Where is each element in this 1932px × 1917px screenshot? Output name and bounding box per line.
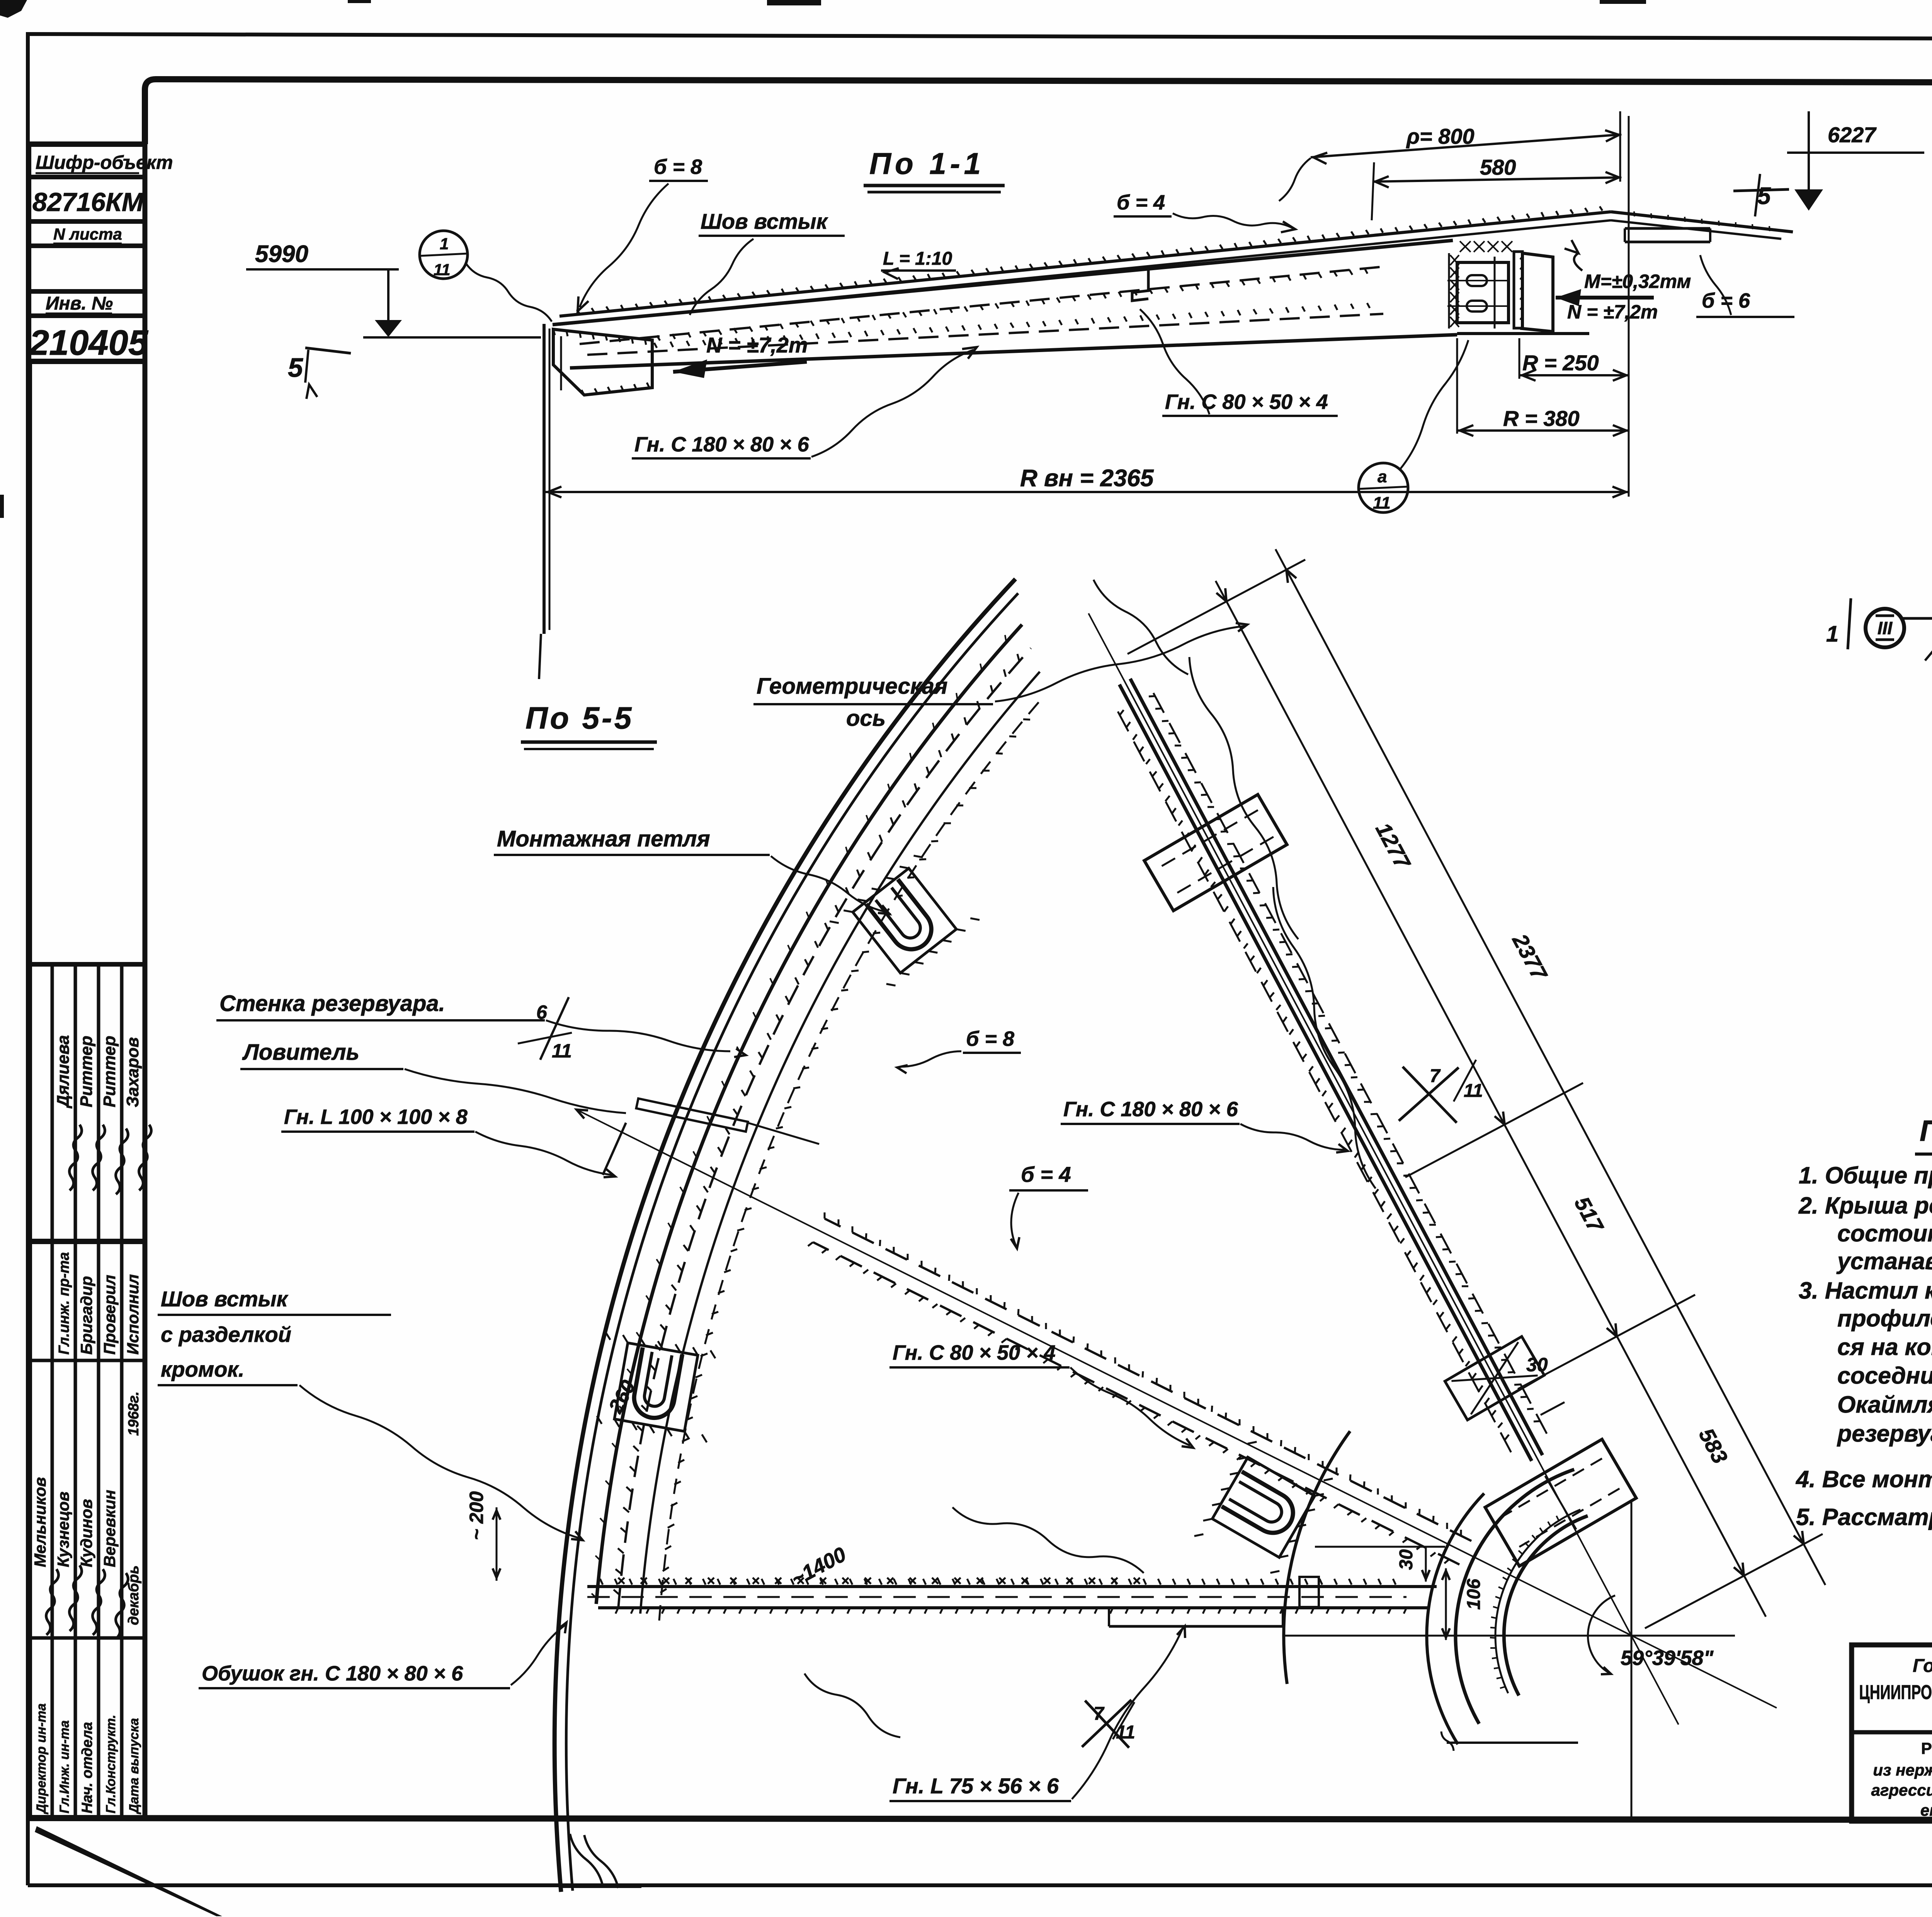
svg-text:Гн. L 75 × 56 × 6: Гн. L 75 × 56 × 6 — [893, 1774, 1059, 1798]
svg-text:1: 1 — [1826, 621, 1838, 647]
svg-text:Шов встык: Шов встык — [701, 209, 828, 233]
svg-text:емкостью 100м³: емкостью 100м³ — [1920, 1801, 1932, 1819]
svg-text:30: 30 — [1526, 1354, 1548, 1376]
svg-text:Гн. С 80 × 50 × 4: Гн. С 80 × 50 × 4 — [1165, 390, 1328, 414]
svg-text:6227: 6227 — [1828, 123, 1877, 147]
svg-text:5990: 5990 — [255, 241, 308, 267]
svg-text:Инв. №: Инв. № — [46, 293, 113, 314]
svg-text:30: 30 — [1396, 1549, 1417, 1570]
svg-text:Дата выпуска: Дата выпуска — [127, 1718, 141, 1815]
svg-text:Гн. L 100 × 100 × 8: Гн. L 100 × 100 × 8 — [284, 1105, 468, 1129]
svg-text:а: а — [1378, 467, 1387, 486]
svg-text:7: 7 — [1094, 1704, 1105, 1724]
svg-text:7: 7 — [1430, 1066, 1441, 1086]
svg-text:М=±0,32тм: М=±0,32тм — [1584, 271, 1691, 292]
svg-text:Директор ин-та: Директор ин-та — [34, 1703, 49, 1815]
svg-text:Проверил: Проверил — [100, 1275, 119, 1355]
svg-text:210405: 210405 — [29, 323, 149, 363]
svg-text:Гн. С 180 × 80 × 6: Гн. С 180 × 80 × 6 — [1063, 1098, 1238, 1121]
svg-text:Окаймляющий щиты гнутый уго: Окаймляющий щиты гнутый уголок приварива… — [1837, 1391, 1932, 1418]
svg-text:11: 11 — [1116, 1722, 1135, 1743]
svg-text:N = ±7,2т: N = ±7,2т — [1567, 301, 1658, 323]
svg-text:82716КМ: 82716КМ — [32, 187, 144, 217]
svg-text:Мельников: Мельников — [31, 1477, 49, 1567]
svg-text:ЦНИИПРОЕКТСТАЛЬКОНСТРУКЦИЯ: ЦНИИПРОЕКТСТАЛЬКОНСТРУКЦИЯ — [1859, 1681, 1932, 1704]
svg-text:Риттер: Риттер — [77, 1036, 96, 1107]
svg-text:По 5-5: По 5-5 — [526, 701, 634, 735]
svg-text:Гн. С 180 × 80 × 6: Гн. С 180 × 80 × 6 — [634, 433, 810, 456]
svg-text:Геометрическая: Геометрическая — [757, 674, 947, 699]
svg-text:ся на конус и на монтаже свар: ся на конус и на монтаже свариваются вст… — [1837, 1334, 1932, 1360]
svg-text:Нач. отдела: Нач. отдела — [79, 1722, 95, 1813]
svg-text:ось: ось — [846, 706, 886, 731]
svg-text:6: 6 — [536, 1001, 548, 1023]
svg-text:устанавливается целиком.: устанавливается целиком. — [1836, 1248, 1932, 1274]
svg-text:По 1-1: По 1-1 — [869, 146, 985, 180]
svg-text:Исполнил: Исполнил — [124, 1274, 142, 1355]
svg-text:соседних щитов.: соседних щитов. — [1837, 1362, 1932, 1389]
svg-text:4. Все монтажные болты М 12.: 4. Все монтажные болты М 12. — [1795, 1466, 1932, 1492]
svg-text:Веревкин: Веревкин — [100, 1490, 119, 1567]
svg-text:106: 106 — [1464, 1579, 1484, 1610]
svg-text:3. Настил крыши б = 4мм прив: 3. Настил крыши б = 4мм приваривается к … — [1799, 1277, 1932, 1304]
svg-text:N = ±7,2т: N = ±7,2т — [706, 333, 808, 357]
svg-text:агрессивных химпродуктов: агрессивных химпродуктов — [1871, 1781, 1932, 1799]
svg-text:Захаров: Захаров — [123, 1037, 142, 1107]
svg-text:11: 11 — [1464, 1081, 1483, 1101]
svg-text:580: 580 — [1480, 155, 1516, 179]
svg-text:б = 8: б = 8 — [966, 1027, 1014, 1050]
svg-text:5. Рассматривать совместно с: 5. Рассматривать совместно с листами 6,1… — [1796, 1504, 1932, 1530]
svg-text:Р Е З Е Р В У А Р: Р Е З Е Р В У А Р — [1921, 1739, 1932, 1757]
svg-text:Ловитель: Ловитель — [242, 1040, 359, 1065]
svg-text:5: 5 — [288, 352, 303, 383]
svg-text:R = 380: R = 380 — [1503, 406, 1580, 431]
svg-text:профилей сплошными швами h: профилей сплошными швами h = 4мм. Окрайк… — [1837, 1305, 1932, 1331]
svg-text:1968г.: 1968г. — [126, 1391, 142, 1436]
svg-text:11: 11 — [1373, 494, 1391, 512]
svg-text:Риттер: Риттер — [100, 1036, 119, 1107]
svg-text:1: 1 — [440, 235, 449, 253]
svg-text:R вн = 2365: R вн = 2365 — [1020, 465, 1154, 492]
svg-text:Обушок гн. С 180 × 80 × 6: Обушок гн. С 180 × 80 × 6 — [202, 1662, 463, 1685]
svg-text:Шифр-объект: Шифр-объект — [36, 152, 173, 173]
svg-text:Госстрой СССР: Госстрой СССР — [1913, 1656, 1932, 1676]
svg-text:Бригадир: Бригадир — [77, 1276, 95, 1355]
svg-text:59°39'58": 59°39'58" — [1621, 1646, 1714, 1670]
svg-text:резервуара сплошными швами: резервуара сплошными швами h = 4 мм. — [1837, 1420, 1932, 1447]
svg-text:Примечания:: Примечания: — [1920, 1115, 1932, 1147]
svg-text:б = 4: б = 4 — [1021, 1162, 1071, 1187]
svg-text:кромок.: кромок. — [161, 1357, 244, 1381]
svg-text:11: 11 — [434, 260, 451, 279]
svg-text:L = 1:10: L = 1:10 — [883, 249, 952, 269]
svg-text:III: III — [1878, 618, 1893, 638]
svg-text:Гл.инж. пр-та: Гл.инж. пр-та — [56, 1252, 72, 1355]
svg-text:с разделкой: с разделкой — [161, 1322, 291, 1347]
svg-text:ρ= 800: ρ= 800 — [1406, 124, 1475, 148]
svg-text:из нержавеющей стали для: из нержавеющей стали для — [1873, 1761, 1932, 1779]
svg-text:б = 4: б = 4 — [1117, 191, 1165, 214]
svg-text:2. Крыша резервуара изготовля: 2. Крыша резервуара изготовляется отдель… — [1798, 1192, 1932, 1219]
svg-text:Гл.Конструкт.: Гл.Конструкт. — [104, 1715, 118, 1813]
svg-text:Монтажная петля: Монтажная петля — [497, 826, 710, 851]
svg-text:декабрь: декабрь — [126, 1565, 142, 1625]
svg-text:б = 8: б = 8 — [654, 155, 702, 179]
svg-text:N листа: N листа — [53, 225, 122, 243]
svg-text:11: 11 — [552, 1040, 572, 1062]
svg-text:Кузнецов: Кузнецов — [54, 1491, 72, 1567]
svg-text:1. Общие примечания см. лист: 1. Общие примечания см. лист 6. — [1799, 1162, 1932, 1188]
svg-text:~ 200: ~ 200 — [466, 1491, 487, 1540]
svg-text:Дялиева: Дялиева — [54, 1035, 73, 1109]
svg-text:Кудинов: Кудинов — [77, 1499, 95, 1567]
svg-text:Гн. С 80 × 50 × 4: Гн. С 80 × 50 × 4 — [893, 1341, 1056, 1364]
svg-text:Стенка резервуара.: Стенка резервуара. — [219, 991, 445, 1016]
svg-text:Шов встык: Шов встык — [161, 1287, 289, 1311]
svg-text:Гл.Инж. ин-та: Гл.Инж. ин-та — [57, 1720, 72, 1813]
svg-text:состоит из 6 щитов. На монтаже: состоит из 6 щитов. На монтаже щиты укру… — [1837, 1220, 1932, 1246]
